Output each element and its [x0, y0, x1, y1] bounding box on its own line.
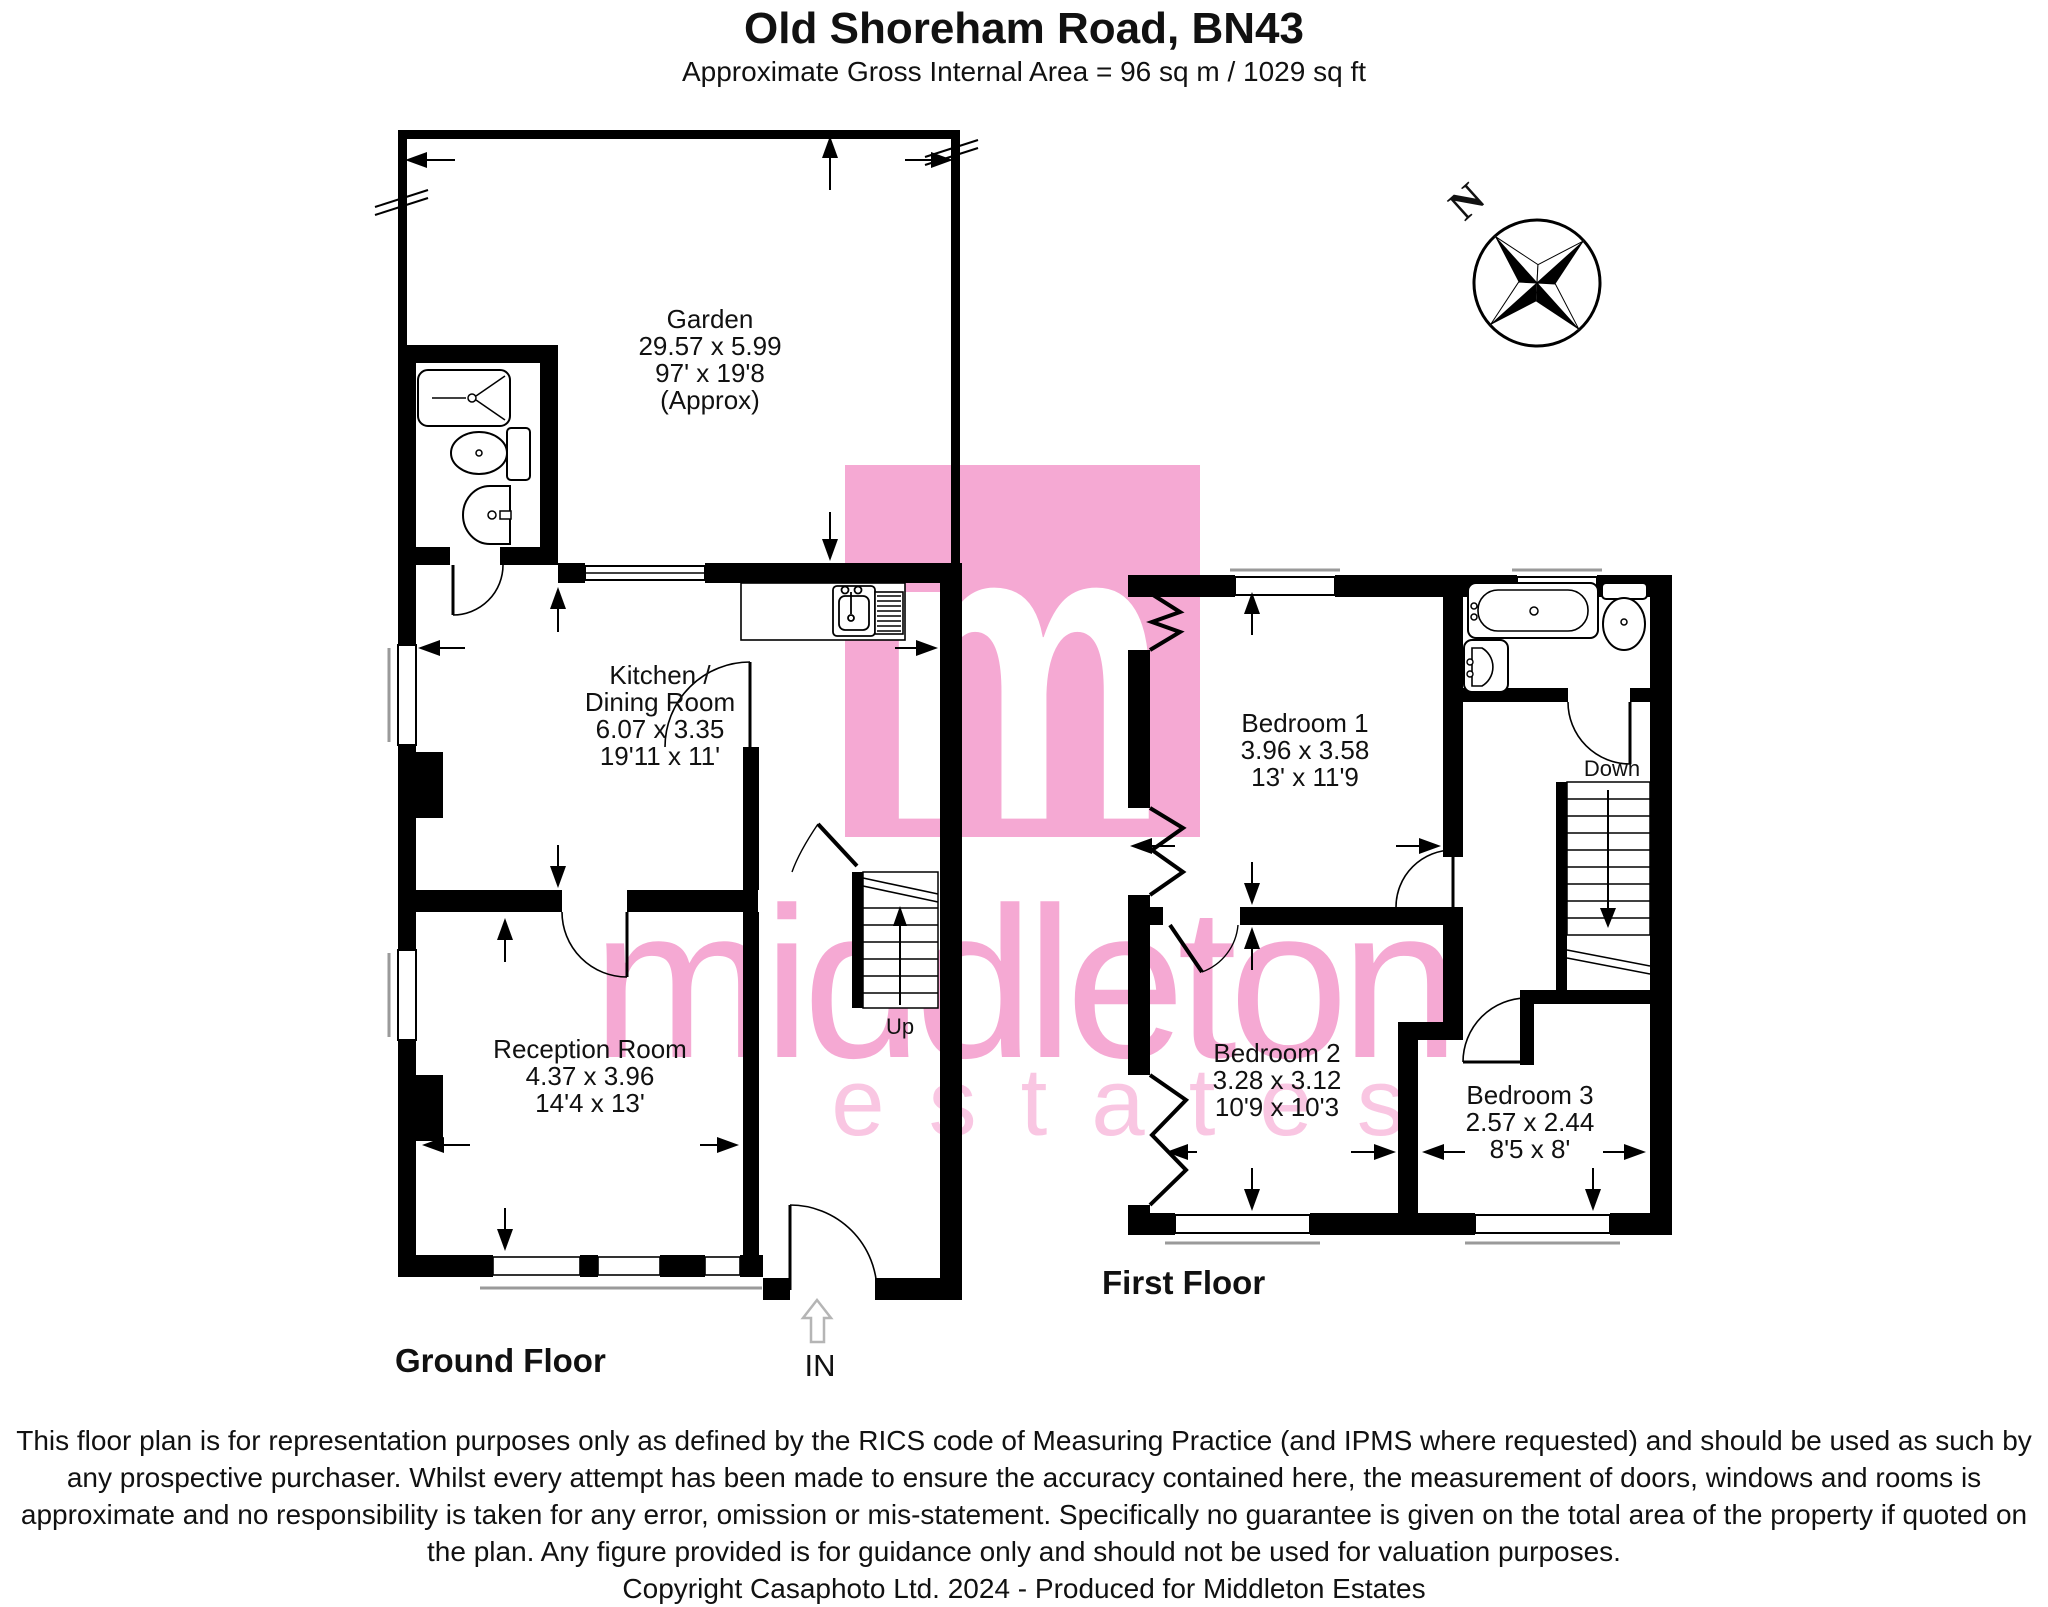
entrance-in-label: IN: [805, 1348, 836, 1384]
room-approx: (Approx): [638, 387, 781, 414]
basin-icon-ff: [1464, 640, 1508, 692]
front-door: [790, 1205, 877, 1292]
hall-door: [792, 824, 857, 872]
stairs-down: [1556, 782, 1650, 990]
footer-text: This floor plan is for representation pu…: [14, 1422, 2034, 1607]
room-name: Bedroom 3: [1466, 1082, 1595, 1109]
copyright-text: Copyright Casaphoto Ltd. 2024 - Produced…: [14, 1570, 2034, 1607]
bedroom1-door: [1396, 850, 1453, 907]
room-metric: 4.37 x 3.96: [493, 1063, 687, 1090]
sink-icon: [833, 586, 875, 636]
shower-icon: [418, 370, 510, 426]
stairs-up: [852, 872, 938, 1008]
ground-bathroom-door: [453, 565, 503, 615]
room-metric: 2.57 x 2.44: [1466, 1109, 1595, 1136]
reception-door: [562, 912, 627, 977]
drainer-icon: [875, 592, 903, 634]
room-metric: 6.07 x 3.35: [585, 716, 735, 743]
entrance-arrow-icon: [803, 1300, 831, 1342]
room-name: Garden: [638, 306, 781, 333]
page-subtitle: Approximate Gross Internal Area = 96 sq …: [682, 56, 1366, 88]
bedroom2-door: [1170, 925, 1238, 972]
room-imperial: 8'5 x 8': [1466, 1136, 1595, 1163]
bedroom2-label: Bedroom 2 3.28 x 3.12 10'9 x 10'3: [1213, 1040, 1342, 1121]
ground-floor-label: Ground Floor: [395, 1342, 606, 1380]
floorplan-page: m middleton estates: [0, 0, 2048, 1573]
bedroom3-label: Bedroom 3 2.57 x 2.44 8'5 x 8': [1466, 1082, 1595, 1163]
bathroom-door: [1568, 702, 1630, 764]
kitchen-side-window: [389, 645, 416, 745]
page-title: Old Shoreham Road, BN43: [744, 4, 1304, 54]
kitchen-label: Kitchen / Dining Room 6.07 x 3.35 19'11 …: [585, 662, 735, 770]
room-metric: 3.96 x 3.58: [1241, 737, 1370, 764]
bedroom3-door: [1463, 998, 1527, 1062]
casement-window-icons: [1150, 593, 1186, 1205]
room-name: Bedroom 2: [1213, 1040, 1342, 1067]
bedroom1-label: Bedroom 1 3.96 x 3.58 13' x 11'9: [1241, 710, 1370, 791]
kitchen-window: [585, 566, 705, 580]
garden-label: Garden 29.57 x 5.99 97' x 19'8 (Approx): [638, 306, 781, 414]
reception-side-window: [389, 950, 416, 1040]
room-imperial: 10'9 x 10'3: [1213, 1094, 1342, 1121]
toilet-icon: [451, 428, 530, 480]
room-metric: 29.57 x 5.99: [638, 333, 781, 360]
room-name: Reception Room: [493, 1036, 687, 1063]
floorplan-graphics: [0, 0, 2048, 1573]
room-imperial: 97' x 19'8: [638, 360, 781, 387]
room-name2: Dining Room: [585, 689, 735, 716]
disclaimer-text: This floor plan is for representation pu…: [14, 1422, 2034, 1570]
room-metric: 3.28 x 3.12: [1213, 1067, 1342, 1094]
front-bay: [398, 1255, 962, 1300]
room-imperial: 14'4 x 13': [493, 1090, 687, 1117]
reception-label: Reception Room 4.37 x 3.96 14'4 x 13': [493, 1036, 687, 1117]
stairs-down-label: Down: [1584, 756, 1640, 782]
basin-icon: [463, 486, 511, 544]
first-floor-label: First Floor: [1102, 1264, 1265, 1302]
room-name: Kitchen /: [585, 662, 735, 689]
bath-icon: [1468, 583, 1598, 638]
room-name: Bedroom 1: [1241, 710, 1370, 737]
toilet-icon-ff: [1602, 583, 1647, 650]
stairs-up-label: Up: [886, 1014, 914, 1040]
room-imperial: 19'11 x 11': [585, 743, 735, 770]
room-imperial: 13' x 11'9: [1241, 764, 1370, 791]
